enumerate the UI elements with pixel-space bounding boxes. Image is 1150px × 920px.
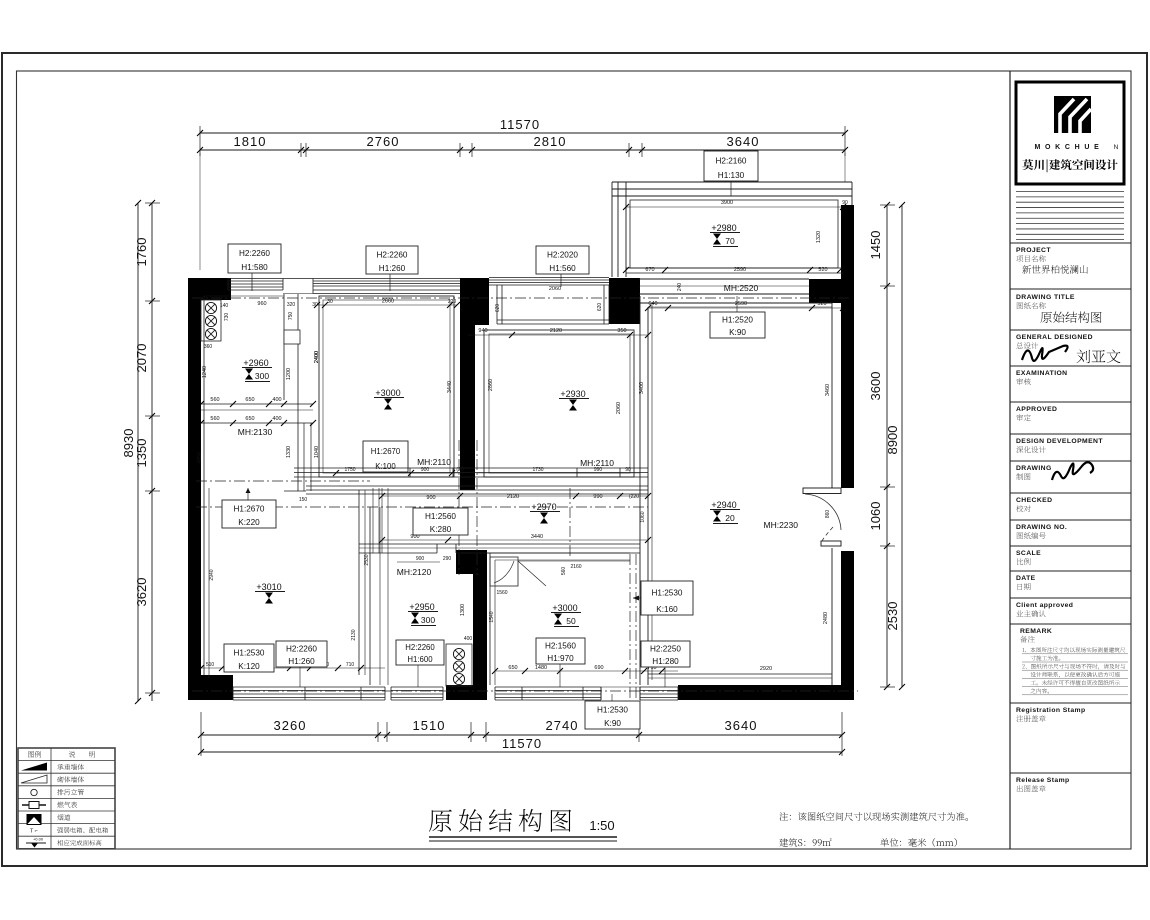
svg-text:1040: 1040: [314, 446, 320, 458]
svg-text:3260: 3260: [274, 718, 307, 733]
svg-text:560: 560: [561, 567, 567, 576]
svg-text:K:90: K:90: [604, 719, 621, 728]
svg-text:+2940: +2940: [711, 500, 736, 510]
svg-text:DRAWING NO.: DRAWING NO.: [1016, 524, 1067, 531]
svg-text:MH:2520: MH:2520: [724, 283, 759, 293]
svg-text:2130: 2130: [351, 629, 357, 640]
svg-text:20: 20: [725, 513, 735, 523]
svg-text:MH:2120: MH:2120: [397, 567, 432, 577]
svg-text:240: 240: [677, 283, 683, 292]
svg-text:900: 900: [426, 495, 435, 501]
svg-text:2060: 2060: [616, 402, 622, 414]
svg-text:150: 150: [299, 497, 308, 503]
svg-text:H1:600: H1:600: [407, 655, 433, 664]
svg-text:750: 750: [288, 312, 294, 321]
svg-text:K:280: K:280: [430, 525, 452, 534]
svg-text:300: 300: [255, 371, 269, 381]
svg-text:400: 400: [464, 636, 473, 642]
svg-text:3460: 3460: [825, 384, 831, 396]
svg-text:2660: 2660: [382, 299, 394, 305]
svg-text:140: 140: [220, 303, 229, 309]
svg-text:EXAMINATION: EXAMINATION: [1016, 370, 1067, 377]
svg-text:1450: 1450: [868, 231, 883, 260]
svg-text:3640: 3640: [725, 718, 758, 733]
svg-text:50: 50: [566, 616, 576, 626]
svg-text:H1:2520: H1:2520: [722, 316, 753, 325]
svg-text:2120: 2120: [507, 494, 519, 500]
svg-text:2480: 2480: [823, 612, 829, 624]
svg-text:400: 400: [272, 416, 281, 422]
svg-text:+2930: +2930: [560, 389, 585, 399]
svg-text:510: 510: [206, 662, 215, 668]
svg-text:GENERAL DESIGNED: GENERAL DESIGNED: [1016, 334, 1093, 341]
svg-text:H2:2020: H2:2020: [547, 251, 578, 260]
svg-text:30: 30: [327, 299, 333, 305]
svg-text:+3010: +3010: [256, 582, 281, 592]
svg-text:70: 70: [725, 236, 735, 246]
svg-text:H1:130: H1:130: [718, 171, 745, 180]
svg-text:690: 690: [594, 665, 603, 671]
svg-text:960: 960: [257, 301, 266, 307]
svg-text:620: 620: [495, 304, 501, 313]
svg-text:K:220: K:220: [238, 518, 260, 527]
svg-text:K:160: K:160: [656, 605, 678, 614]
svg-text:3640: 3640: [727, 134, 760, 149]
svg-text:REMARK: REMARK: [1020, 628, 1052, 635]
svg-text:H2:2160: H2:2160: [716, 157, 747, 166]
svg-text:2940: 2940: [209, 569, 215, 580]
svg-text:DRAWING TITLE: DRAWING TITLE: [1016, 294, 1075, 301]
svg-text:H1:2530: H1:2530: [597, 706, 628, 715]
svg-text:1510: 1510: [413, 718, 446, 733]
svg-text:SCALE: SCALE: [1016, 550, 1041, 557]
svg-text:520: 520: [817, 301, 826, 307]
svg-text:(220: (220: [629, 494, 639, 500]
svg-text:2740: 2740: [546, 718, 579, 733]
svg-text:11570: 11570: [502, 736, 542, 751]
svg-text:1810: 1810: [234, 134, 267, 149]
svg-text:730: 730: [224, 313, 230, 322]
svg-text:K:90: K:90: [729, 328, 746, 337]
svg-text:1060: 1060: [640, 511, 646, 522]
svg-text:+2960: +2960: [243, 358, 268, 368]
svg-text:+3000: +3000: [375, 388, 400, 398]
svg-text:290: 290: [443, 556, 452, 562]
svg-text:H2:2250: H2:2250: [650, 645, 681, 654]
svg-text:K:100: K:100: [375, 462, 396, 471]
svg-text:H1:2530: H1:2530: [234, 649, 265, 658]
svg-text:1560: 1560: [496, 590, 507, 596]
svg-text:2400: 2400: [314, 351, 320, 363]
svg-text:1320: 1320: [816, 231, 822, 243]
svg-text:1480: 1480: [535, 665, 547, 671]
svg-text:650: 650: [245, 416, 254, 422]
svg-text:1350: 1350: [134, 439, 149, 468]
svg-text:8900: 8900: [885, 426, 900, 455]
svg-text:H1:260: H1:260: [379, 264, 406, 273]
svg-text:560: 560: [210, 397, 219, 403]
svg-text:H1:970: H1:970: [547, 654, 574, 663]
svg-text:2530: 2530: [364, 554, 370, 565]
svg-text:670: 670: [645, 267, 654, 273]
svg-text:H1:2530: H1:2530: [652, 589, 683, 598]
svg-text:3600: 3600: [868, 372, 883, 401]
svg-text:DATE: DATE: [1016, 575, 1036, 582]
svg-text:Release Stamp: Release Stamp: [1016, 777, 1070, 784]
svg-text:3620: 3620: [134, 578, 149, 607]
svg-text:1:50: 1:50: [589, 818, 614, 833]
svg-text:400: 400: [272, 397, 281, 403]
svg-text:MH:2130: MH:2130: [238, 427, 273, 437]
svg-text:MH:2230: MH:2230: [764, 520, 799, 530]
svg-text:90: 90: [842, 200, 848, 206]
svg-text:560: 560: [210, 416, 219, 422]
svg-text:APPROVED: APPROVED: [1016, 406, 1057, 413]
svg-text:H2:2260: H2:2260: [286, 645, 317, 654]
svg-text:520: 520: [818, 267, 827, 273]
svg-text:T ⌐: T ⌐: [30, 829, 38, 835]
svg-text:H2:2260: H2:2260: [405, 643, 435, 652]
svg-text:1060: 1060: [868, 502, 883, 531]
svg-text:H2:2260: H2:2260: [377, 251, 408, 260]
svg-text:990: 990: [593, 494, 602, 500]
svg-text:H1:2670: H1:2670: [371, 447, 401, 456]
svg-text:+3000: +3000: [552, 603, 577, 613]
svg-text:N: N: [1114, 144, 1119, 151]
svg-text:1240: 1240: [202, 366, 208, 378]
svg-text:2530: 2530: [885, 602, 900, 631]
svg-text:Client approved: Client approved: [1016, 602, 1073, 609]
svg-text:650: 650: [508, 665, 517, 671]
svg-text:K:120: K:120: [238, 662, 260, 671]
svg-text:CHECKED: CHECKED: [1016, 497, 1052, 504]
svg-text:860: 860: [825, 510, 831, 519]
svg-text:PROJECT: PROJECT: [1016, 247, 1051, 254]
svg-text:220: 220: [448, 299, 457, 305]
svg-text:2810: 2810: [534, 134, 567, 149]
svg-text:2760: 2760: [367, 134, 400, 149]
svg-text:+2970: +2970: [531, 502, 556, 512]
svg-text:3400: 3400: [639, 382, 645, 394]
svg-text:650: 650: [245, 397, 254, 403]
svg-text:H1:260: H1:260: [288, 657, 315, 666]
svg-text:H1:580: H1:580: [241, 263, 268, 272]
svg-text:620: 620: [597, 303, 603, 312]
svg-text:300: 300: [421, 615, 435, 625]
svg-text:11570: 11570: [500, 117, 540, 132]
svg-text:3900: 3900: [721, 200, 733, 206]
svg-text:2120: 2120: [550, 328, 562, 334]
svg-text:+0.00: +0.00: [33, 837, 44, 842]
svg-text:H1:280: H1:280: [652, 657, 679, 666]
svg-text:Registration Stamp: Registration Stamp: [1016, 707, 1086, 714]
svg-text:30: 30: [312, 302, 318, 308]
svg-text:3440: 3440: [531, 534, 543, 540]
svg-text:H1:560: H1:560: [549, 264, 576, 273]
svg-text:2060: 2060: [549, 286, 561, 292]
svg-text:1200: 1200: [286, 368, 292, 380]
svg-text:H1:2670: H1:2670: [234, 505, 265, 514]
svg-text:3440: 3440: [447, 381, 453, 393]
svg-text:2070: 2070: [134, 344, 149, 373]
svg-text:MOKCHUE: MOKCHUE: [1034, 144, 1103, 151]
svg-text:H1:2560: H1:2560: [425, 512, 456, 521]
svg-text:1760: 1760: [134, 238, 149, 267]
svg-text:2920: 2920: [760, 666, 772, 672]
svg-text:360: 360: [204, 344, 213, 350]
svg-text:+2980: +2980: [711, 223, 736, 233]
svg-text:H2:2260: H2:2260: [239, 249, 270, 258]
svg-text:DESIGN DEVELOPMENT: DESIGN DEVELOPMENT: [1016, 438, 1103, 445]
svg-text:2160: 2160: [570, 564, 581, 570]
svg-text:350: 350: [617, 328, 626, 334]
svg-text:MH:2110: MH:2110: [417, 457, 451, 467]
svg-text:+2950: +2950: [409, 602, 434, 612]
svg-text:940: 940: [478, 328, 487, 334]
svg-text:900: 900: [416, 556, 425, 562]
svg-text:1300: 1300: [460, 604, 466, 616]
svg-text:710: 710: [346, 662, 355, 668]
svg-text:4950: 4950: [197, 452, 203, 463]
svg-text:H2:1560: H2:1560: [545, 642, 576, 651]
svg-text:320: 320: [287, 302, 296, 308]
svg-text:DRAWING: DRAWING: [1016, 465, 1052, 472]
svg-text:2590: 2590: [734, 267, 746, 273]
svg-text:1330: 1330: [286, 446, 292, 458]
